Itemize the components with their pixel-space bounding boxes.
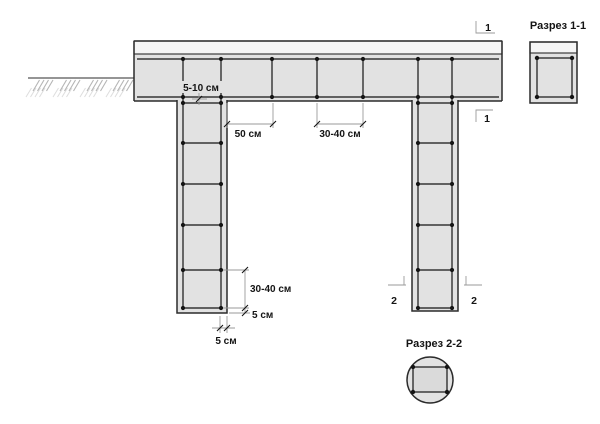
dim-label-50: 50 см bbox=[235, 129, 262, 140]
ground-hatch-stroke bbox=[120, 88, 126, 97]
dim-label-pile-30-40: 30-40 см bbox=[250, 284, 291, 295]
rebar-node bbox=[181, 101, 185, 105]
ground-hatch-stroke bbox=[85, 88, 91, 97]
foundation-reinforcement-diagram: 5-10 см 50 см 30-40 см 30-40 см 5 см bbox=[0, 0, 600, 424]
rebar-node bbox=[450, 306, 454, 310]
dim-label-5cm-offset: 5 см bbox=[252, 310, 273, 321]
rebar-node bbox=[416, 57, 420, 61]
ground-hatch-stroke bbox=[40, 88, 46, 97]
dim-5cm-cover: 5 см bbox=[212, 316, 237, 347]
rebar-node bbox=[181, 57, 185, 61]
ground-hatch-stroke bbox=[26, 88, 32, 97]
screed-hatch-strip bbox=[134, 41, 502, 54]
rebar-node bbox=[450, 101, 454, 105]
rebar-node bbox=[450, 223, 454, 227]
rebar-node bbox=[181, 182, 185, 186]
dim-label-beam-30-40: 30-40 см bbox=[319, 129, 360, 140]
rebar-node bbox=[219, 141, 223, 145]
section-2-2-view: Разрез 2-2 bbox=[406, 338, 462, 403]
ground-hatch bbox=[26, 80, 133, 97]
rebar-node bbox=[361, 57, 365, 61]
rebar-node bbox=[181, 306, 185, 310]
dim-5cm-bottom-offset: 5 см bbox=[229, 310, 273, 321]
rebar-node bbox=[450, 268, 454, 272]
rebar-node bbox=[219, 101, 223, 105]
dim-beam-30-40: 30-40 см bbox=[314, 103, 366, 140]
pile-right bbox=[412, 100, 458, 311]
rebar-node bbox=[181, 223, 185, 227]
rebar-node bbox=[361, 95, 365, 99]
rebar-node bbox=[219, 223, 223, 227]
section-2-2-rebar-cage bbox=[413, 367, 447, 392]
rebar-node bbox=[219, 268, 223, 272]
rebar-node bbox=[181, 141, 185, 145]
pile-left bbox=[177, 100, 227, 313]
rebar-node bbox=[450, 182, 454, 186]
ground-hatch-stroke bbox=[111, 88, 117, 97]
ground-hatch-stroke bbox=[80, 88, 86, 97]
section-1-1-view: Разрез 1-1 bbox=[530, 20, 586, 103]
ground-hatch-stroke bbox=[106, 88, 112, 97]
section-cut-marker-2-right: 2 bbox=[464, 276, 482, 307]
rebar-node bbox=[219, 57, 223, 61]
diagram-canvas: 5-10 см 50 см 30-40 см 30-40 см 5 см bbox=[0, 0, 600, 424]
ground-hatch-stroke bbox=[58, 88, 64, 97]
dim-50cm: 50 см bbox=[224, 103, 276, 140]
ground-hatch-stroke bbox=[94, 88, 100, 97]
rebar-node bbox=[270, 95, 274, 99]
dim-label-5-10: 5-10 см bbox=[183, 83, 219, 94]
rebar-node bbox=[270, 57, 274, 61]
rebar-node bbox=[416, 223, 420, 227]
rebar-node bbox=[450, 141, 454, 145]
section-cut-marker-2-left: 2 bbox=[388, 276, 406, 307]
rebar-node bbox=[219, 306, 223, 310]
ground-hatch-stroke bbox=[31, 88, 37, 97]
dim-label-5cm-cover: 5 см bbox=[215, 336, 236, 347]
ground-hatch-stroke bbox=[62, 88, 68, 97]
ground-hatch-stroke bbox=[35, 88, 41, 97]
rebar-node bbox=[315, 95, 319, 99]
rebar-node bbox=[416, 101, 420, 105]
marker-label-2-right: 2 bbox=[471, 295, 477, 307]
rebar-node bbox=[181, 268, 185, 272]
marker-label-1-top: 1 bbox=[485, 22, 491, 34]
rebar-node bbox=[315, 57, 319, 61]
dim-pile-30-40: 30-40 см bbox=[223, 267, 291, 313]
ground-hatch-stroke bbox=[67, 88, 73, 97]
section-cut-marker-1-bottom: 1 bbox=[476, 110, 493, 125]
ground-hatch-stroke bbox=[89, 88, 95, 97]
ground-level bbox=[26, 78, 134, 97]
rebar-node bbox=[416, 268, 420, 272]
marker-label-2-left: 2 bbox=[391, 295, 397, 307]
section-2-2-title: Разрез 2-2 bbox=[406, 338, 462, 350]
rebar-node bbox=[416, 182, 420, 186]
section-1-1-title: Разрез 1-1 bbox=[530, 20, 586, 32]
rebar-node bbox=[416, 306, 420, 310]
section-cut-marker-1-top: 1 bbox=[476, 21, 495, 34]
rebar-node bbox=[450, 57, 454, 61]
marker-label-1-bottom: 1 bbox=[484, 113, 490, 125]
rebar-node bbox=[416, 141, 420, 145]
rebar-node bbox=[219, 182, 223, 186]
ground-hatch-stroke bbox=[53, 88, 59, 97]
ground-hatch-stroke bbox=[115, 88, 121, 97]
